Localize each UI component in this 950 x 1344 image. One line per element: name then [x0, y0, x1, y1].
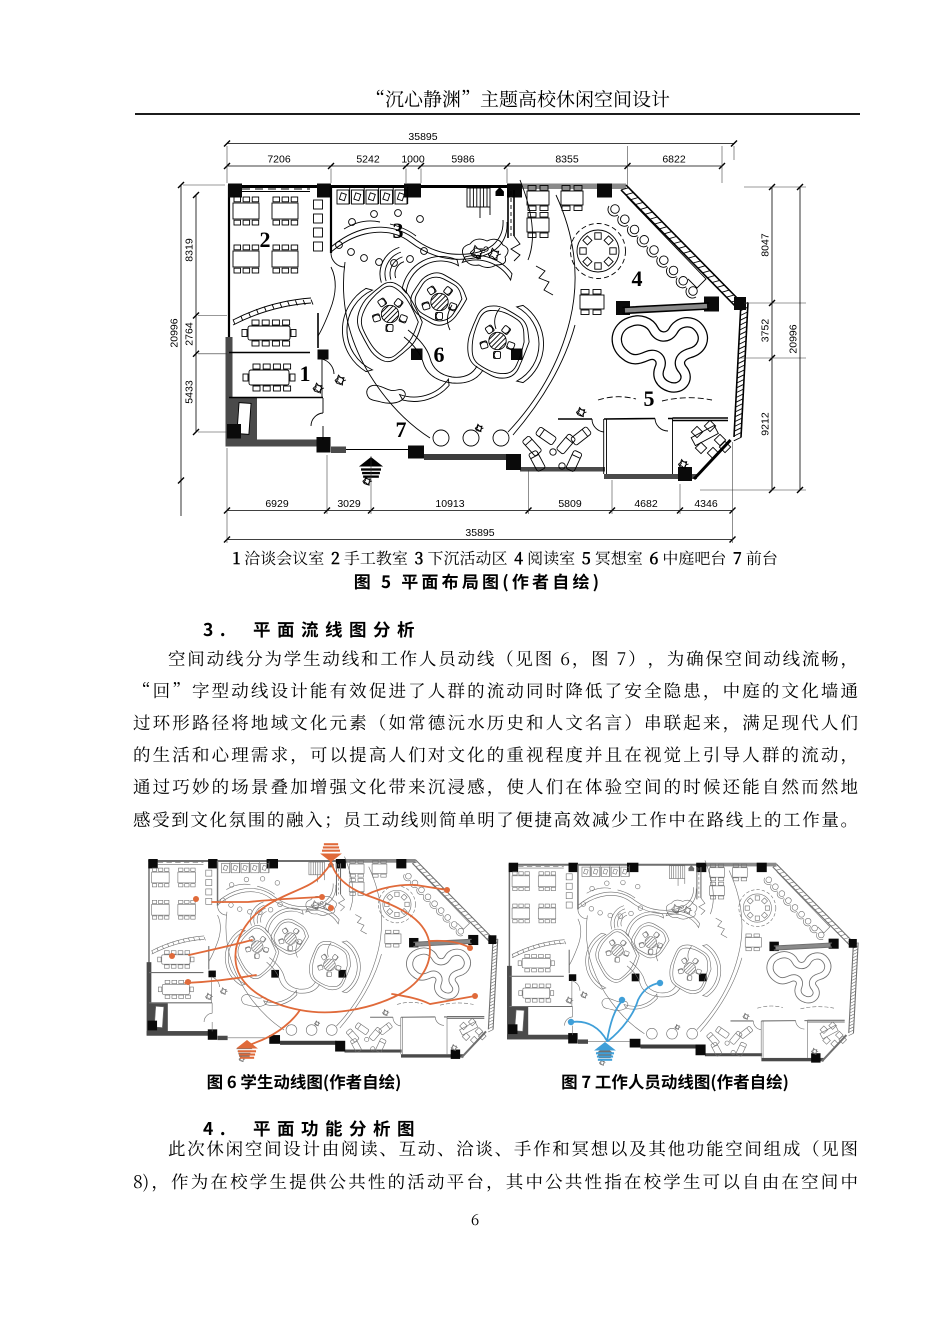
- svg-text:35895: 35895: [408, 131, 437, 143]
- svg-text:2764: 2764: [184, 322, 196, 346]
- svg-text:3752: 3752: [760, 319, 772, 343]
- svg-text:5986: 5986: [451, 154, 475, 166]
- svg-text:7206: 7206: [267, 154, 291, 166]
- svg-text:4346: 4346: [694, 498, 718, 510]
- svg-text:3: 3: [393, 218, 404, 243]
- svg-text:6822: 6822: [662, 154, 686, 166]
- svg-text:4: 4: [632, 266, 643, 291]
- svg-text:1000: 1000: [401, 154, 425, 166]
- svg-text:3029: 3029: [337, 498, 361, 510]
- svg-text:20996: 20996: [788, 324, 800, 353]
- svg-text:5242: 5242: [356, 154, 380, 166]
- svg-text:20996: 20996: [169, 318, 181, 347]
- svg-text:7: 7: [396, 417, 407, 442]
- svg-text:1: 1: [300, 361, 311, 386]
- svg-text:8319: 8319: [184, 238, 196, 262]
- svg-text:35895: 35895: [465, 527, 494, 539]
- svg-text:8355: 8355: [555, 154, 579, 166]
- svg-text:10913: 10913: [435, 498, 464, 510]
- svg-text:5433: 5433: [184, 380, 196, 404]
- svg-text:5809: 5809: [558, 498, 582, 510]
- svg-text:5: 5: [644, 386, 655, 411]
- svg-text:2: 2: [260, 227, 271, 252]
- svg-text:4682: 4682: [634, 498, 658, 510]
- svg-text:6929: 6929: [265, 498, 289, 510]
- svg-text:9212: 9212: [760, 412, 772, 436]
- svg-text:8047: 8047: [760, 233, 772, 257]
- svg-text:6: 6: [434, 342, 445, 367]
